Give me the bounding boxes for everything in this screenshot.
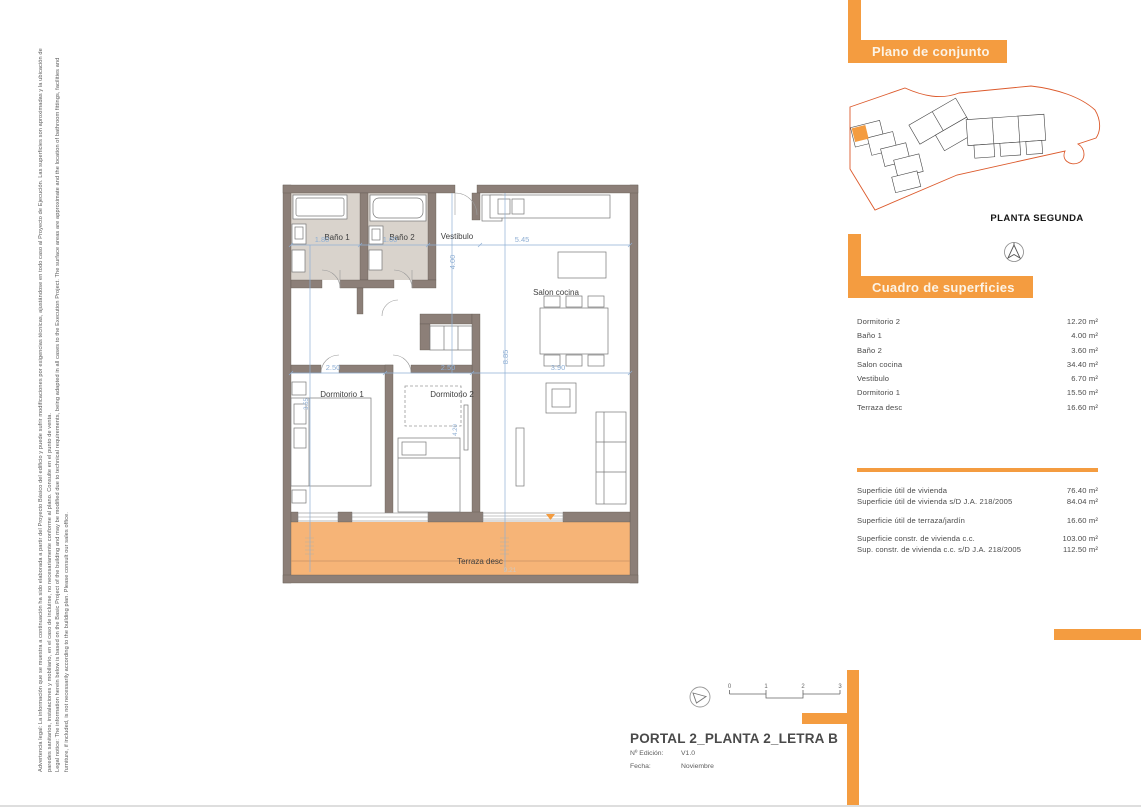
edition-value: V1.0 [681,750,695,757]
table-row: Baño 1 4.00 m² [857,331,1098,345]
row-label: Baño 2 [857,346,882,360]
row-value: 16.60 m² [1067,403,1098,417]
summary-label: Superficie útil de vivienda s/D J.A. 218… [857,497,1012,508]
row-label: Baño 1 [857,331,882,345]
accent-bar-areas [848,234,861,298]
dim-dorm2-width: 2.50 [441,363,456,372]
legal-disclaimer: Advertencia legal: La información que se… [37,39,72,772]
table-row: Terraza desc 16.60 m² [857,403,1098,417]
sheet-title: PORTAL 2_PLANTA 2_LETRA B [630,731,838,746]
dim-bano1-width: 1.80 [315,235,330,244]
room-label-vestibulo: Vestibulo [441,232,474,241]
summary-label: Superficie constr. de vivienda c.c. [857,534,975,545]
site-plan-header-label: Plano de conjunto [872,44,990,59]
summary-row: Superficie constr. de vivienda c.c. 103.… [857,534,1098,545]
row-label: Terraza desc [857,403,902,417]
row-value: 12.20 m² [1067,317,1098,331]
summary-row: Superficie útil de terraza/jardín 16.60 … [857,516,1098,527]
scale-tick-1: 1 [764,684,768,690]
row-value: 6.70 m² [1071,374,1098,388]
scale-tick-2: 2 [801,684,805,690]
summary-label: Superficie útil de vivienda [857,486,947,497]
room-label-dormitorio2: Dormitorio 2 [430,390,474,399]
summary-label: Sup. constr. de vivienda c.c. s/D J.A. 2… [857,545,1021,556]
dim-dorm2-height: 4.20 [453,424,459,436]
row-value: 34.40 m² [1067,360,1098,374]
row-label: Vestibulo [857,374,889,388]
room-label-salon: Salon cocina [533,288,579,297]
row-label: Salon cocina [857,360,902,374]
areas-header: Cuadro de superficies [861,276,1033,298]
dim-bano2-width: 1.60 [383,235,398,244]
orientation-compass-icon [688,685,712,709]
row-value: 3.60 m² [1071,346,1098,360]
dim-salon-height: 8.85 [501,350,510,365]
table-row: Baño 2 3.60 m² [857,346,1098,360]
summary-row: Superficie útil de vivienda s/D J.A. 218… [857,497,1098,508]
accent-bar-top [848,0,861,63]
scale-bar: 0 1 2 3 [727,681,845,703]
dim-dorm1-height: 3.55 [304,398,310,410]
scale-tick-3: 3 [838,684,842,690]
dim-salon-width: 5.45 [515,235,530,244]
surface-summary: Superficie útil de vivienda 76.40 m² Sup… [857,486,1098,556]
scale-tick-0: 0 [728,684,732,690]
summary-label: Superficie útil de terraza/jardín [857,516,965,527]
date-label: Fecha: [630,763,651,770]
accent-bar-right [1054,629,1141,640]
row-value: 15.50 m² [1067,388,1098,402]
row-label: Dormitorio 1 [857,388,900,402]
summary-divider [857,468,1098,472]
summary-row: Superficie útil de vivienda 76.40 m² [857,486,1098,497]
table-row: Vestibulo 6.70 m² [857,374,1098,388]
site-plan-header: Plano de conjunto [861,40,1007,63]
site-building-right [966,114,1047,158]
table-row: Dormitorio 2 12.20 m² [857,317,1098,331]
row-label: Dormitorio 2 [857,317,900,331]
room-label-dormitorio1: Dormitorio 1 [320,390,364,399]
table-row: Dormitorio 1 15.50 m² [857,388,1098,402]
accent-bar-bottom-arm [802,713,847,724]
areas-header-label: Cuadro de superficies [872,280,1015,295]
accent-bar-bottom-vertical [847,670,859,807]
summary-value: 84.04 m² [1067,497,1098,508]
row-value: 4.00 m² [1071,331,1098,345]
summary-value: 16.60 m² [1067,516,1098,527]
dim-dorm1-width: 2.50 [326,363,341,372]
site-plan [845,83,1107,218]
legal-disclaimer-en: Legal notice: The information herein bel… [54,39,71,772]
dim-salon-width2: 3.90 [551,363,566,372]
summary-row: Sup. constr. de vivienda c.c. s/D J.A. 2… [857,545,1098,556]
dim-terraza-width: 9.21 [504,567,517,574]
site-building-middle [909,98,976,160]
dim-vestibulo-height: 4.00 [448,255,457,270]
terrace-floor [291,522,630,575]
areas-table: Dormitorio 2 12.20 m² Baño 1 4.00 m² Bañ… [857,317,1098,417]
summary-value: 76.40 m² [1067,486,1098,497]
room-label-terraza: Terraza desc [457,557,503,566]
table-row: Salon cocina 34.40 m² [857,360,1098,374]
edition-label: Nº Edición: [630,750,663,757]
legal-disclaimer-es: Advertencia legal: La información que se… [37,39,54,772]
summary-value: 112.50 m² [1063,545,1098,556]
date-value: Noviembre [681,763,714,770]
floor-plan: Baño 1 Baño 2 Vestibulo Salon cocina Dor… [278,180,642,588]
north-compass-icon [1001,239,1027,265]
summary-value: 103.00 m² [1062,534,1098,545]
floor-level-label: PLANTA SEGUNDA [972,213,1102,224]
